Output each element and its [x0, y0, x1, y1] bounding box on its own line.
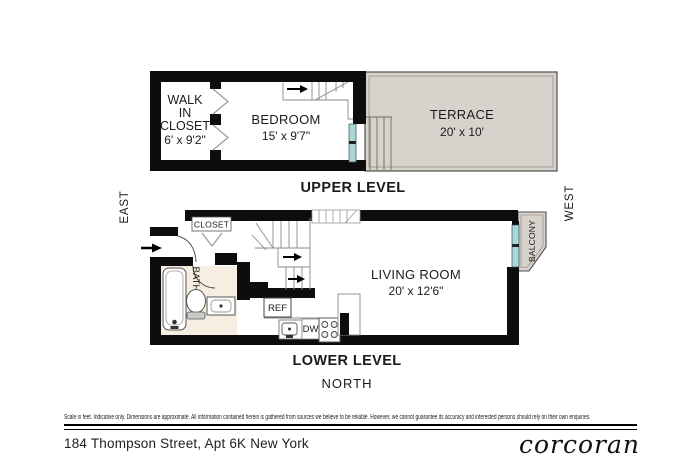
kitchen-sink-icon	[279, 320, 302, 339]
compass-west: WEST	[564, 185, 576, 221]
terrace-label: TERRACE	[430, 107, 494, 122]
entry-arrow-icon	[141, 244, 162, 253]
bedroom-stairs-arrow-icon	[287, 85, 308, 93]
svg-text:15' x 9'7": 15' x 9'7"	[262, 129, 310, 143]
svg-text:WALK: WALK	[168, 93, 204, 107]
stairwell-opening	[312, 210, 360, 223]
footer-rule-thick	[64, 424, 637, 426]
lower-closet: CLOSET	[192, 217, 231, 246]
bath-label: BATH	[190, 267, 201, 292]
refrigerator: REF	[264, 298, 291, 317]
disclaimer-text: Scale in feet. Indicative only. Dimensio…	[64, 414, 464, 421]
compass-north: NORTH	[322, 376, 373, 391]
kitchen-peninsula	[338, 294, 360, 335]
lower-level-plan: BALCONY	[141, 210, 546, 391]
walk-in-closet-label: WALK IN CLOSET 6' x 9'2"	[160, 93, 210, 147]
closet-label: CLOSET	[194, 220, 229, 230]
toilet-icon	[187, 290, 206, 320]
lower-level-title: LOWER LEVEL	[292, 353, 401, 369]
svg-text:6' x 9'2": 6' x 9'2"	[164, 133, 206, 147]
floorplan-drawing: TERRACE 20' x 10'	[0, 0, 700, 466]
listing-address: 184 Thompson Street, Apt 6K New York	[64, 436, 309, 451]
stove-icon	[319, 318, 340, 342]
closet-door-chevron-icon	[202, 233, 222, 246]
ref-label: REF	[268, 303, 287, 314]
compass-east: EAST	[119, 190, 131, 223]
dw-label: DW	[303, 324, 319, 335]
dishwasher: DW	[302, 319, 319, 339]
balcony-area: BALCONY	[518, 212, 546, 271]
bath-sink-icon	[207, 297, 235, 315]
svg-text:20' x 12'6": 20' x 12'6"	[389, 284, 444, 298]
terrace-area: TERRACE 20' x 10'	[365, 72, 557, 171]
upper-level-title: UPPER LEVEL	[300, 180, 405, 196]
terrace-dims: 20' x 10'	[440, 125, 484, 139]
terrace-door-glazing	[349, 124, 356, 162]
svg-text:IN: IN	[179, 106, 192, 120]
balcony-door-glazing	[512, 225, 519, 267]
svg-text:LIVING ROOM: LIVING ROOM	[371, 267, 461, 282]
upper-level-plan: TERRACE 20' x 10'	[150, 71, 557, 196]
corcoran-logo: corcoran	[519, 430, 640, 459]
bedroom-label: BEDROOM 15' x 9'7"	[251, 112, 320, 143]
floorplan-page: TERRACE 20' x 10'	[0, 0, 700, 466]
svg-text:CLOSET: CLOSET	[160, 119, 210, 133]
balcony-label: BALCONY	[527, 220, 537, 262]
svg-text:BEDROOM: BEDROOM	[251, 112, 320, 127]
living-room-label: LIVING ROOM 20' x 12'6"	[371, 267, 461, 298]
bathtub-icon	[163, 268, 186, 330]
